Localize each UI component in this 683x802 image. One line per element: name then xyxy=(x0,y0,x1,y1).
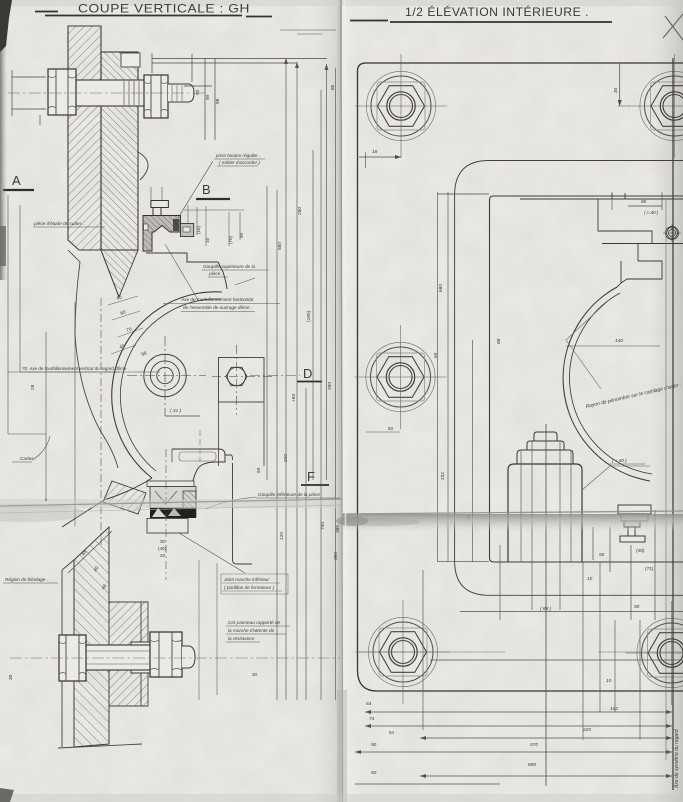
svg-text:30: 30 xyxy=(252,672,258,677)
svg-text:(71): (71) xyxy=(645,566,654,572)
svg-text:18: 18 xyxy=(372,149,378,155)
svg-text:98: 98 xyxy=(239,232,244,238)
svg-text:Axe de symétrie du regard: Axe de symétrie du regard xyxy=(674,729,680,789)
svg-text:232: 232 xyxy=(440,472,446,480)
svg-text:Région de blindage .: Région de blindage . xyxy=(5,577,48,582)
svg-text:la marche d'attente de: la marche d'attente de xyxy=(228,628,275,633)
svg-text:F: F xyxy=(307,469,315,484)
svg-text:( portillon de fermeture ): ( portillon de fermeture ) xyxy=(224,585,274,590)
svg-text:( 88 ): ( 88 ) xyxy=(540,606,552,612)
svg-text:90: 90 xyxy=(195,89,201,95)
svg-text:Joint marche inférieur: Joint marche inférieur xyxy=(223,577,270,582)
svg-text:30: 30 xyxy=(613,87,619,93)
svg-text:85: 85 xyxy=(641,199,647,205)
svg-text:pièce .: pièce . xyxy=(208,271,223,276)
svg-text:Goupille supérieure de la: Goupille supérieure de la xyxy=(203,264,256,269)
svg-text:20: 20 xyxy=(160,553,166,558)
svg-text:70. Axe de tourbillonnement v: 70. Axe de tourbillonnement vertical du … xyxy=(22,366,129,371)
svg-text:30: 30 xyxy=(8,674,14,680)
svg-text:390: 390 xyxy=(333,552,339,560)
svg-text:88: 88 xyxy=(496,338,502,344)
svg-text:30: 30 xyxy=(160,539,166,544)
svg-text:10: 10 xyxy=(606,678,612,684)
svg-text:28: 28 xyxy=(30,384,36,390)
svg-text:90: 90 xyxy=(256,467,262,473)
svg-text:de l'ensemble de ouvrage dôme: de l'ensemble de ouvrage dôme . xyxy=(183,305,252,310)
svg-text:16: 16 xyxy=(205,237,210,243)
svg-text:COUPE VERTICALE : GH: COUPE VERTICALE : GH xyxy=(78,2,250,16)
svg-text:A: A xyxy=(12,173,21,188)
svg-text:220: 220 xyxy=(582,727,591,733)
svg-text:570: 570 xyxy=(530,742,538,748)
svg-text:98: 98 xyxy=(215,98,221,104)
svg-text:1/2 ÉLÉVATION INTÉRIEURE .: 1/2 ÉLÉVATION INTÉRIEURE . xyxy=(405,4,589,19)
svg-text:la résistance .: la résistance . xyxy=(228,636,257,641)
svg-text:120: 120 xyxy=(279,532,285,540)
svg-text:+60: +60 xyxy=(291,394,297,402)
svg-text:385: 385 xyxy=(335,525,341,533)
svg-text:890: 890 xyxy=(528,762,536,768)
svg-text:50: 50 xyxy=(371,770,377,776)
svg-text:Carter .: Carter . xyxy=(20,456,36,461)
svg-text:64: 64 xyxy=(389,730,395,735)
svg-text:55: 55 xyxy=(599,552,605,558)
svg-text:90: 90 xyxy=(205,94,211,100)
svg-text:140: 140 xyxy=(615,338,623,344)
svg-text:B: B xyxy=(202,182,211,197)
svg-text:280: 280 xyxy=(297,207,303,215)
svg-text:D: D xyxy=(303,366,312,381)
svg-text:580: 580 xyxy=(277,242,283,250)
svg-text:50: 50 xyxy=(388,426,394,431)
svg-text:Goupille inférieure de la pièc: Goupille inférieure de la pièce . xyxy=(258,492,323,497)
svg-text:90: 90 xyxy=(634,604,640,610)
svg-text:( 31 ): ( 31 ) xyxy=(170,408,182,414)
svg-text:74: 74 xyxy=(369,716,375,722)
svg-text:( métier d'accorder ): ( métier d'accorder ) xyxy=(219,160,260,165)
svg-text:Axe de tourbillonnement horizo: Axe de tourbillonnement horizontal xyxy=(180,297,254,302)
svg-text:680: 680 xyxy=(438,284,444,292)
svg-text:(30): (30) xyxy=(636,548,645,554)
svg-text:10: 10 xyxy=(587,576,593,582)
svg-text:60: 60 xyxy=(433,352,439,358)
svg-text:290: 290 xyxy=(327,382,333,390)
svg-text:102: 102 xyxy=(610,706,618,712)
svg-text:( + 40 ): ( + 40 ) xyxy=(612,458,627,463)
svg-text:86: 86 xyxy=(330,84,336,90)
svg-text:(40): (40) xyxy=(158,546,167,551)
svg-text:Cet panneau rapporté de: Cet panneau rapporté de xyxy=(228,620,281,625)
svg-text:700: 700 xyxy=(320,522,326,530)
svg-text:(10): (10) xyxy=(196,225,201,234)
svg-text:( r=40 ): ( r=40 ) xyxy=(644,210,659,215)
svg-text:prise bouton régulier ,: prise bouton régulier , xyxy=(215,153,260,158)
svg-text:54: 54 xyxy=(366,701,372,707)
svg-text:pièce d'étude de cutter .: pièce d'étude de cutter . xyxy=(33,221,84,226)
svg-text:(70): (70) xyxy=(228,235,233,244)
svg-text:90: 90 xyxy=(371,742,377,748)
svg-text:(180): (180) xyxy=(306,310,312,322)
svg-text:200: 200 xyxy=(283,454,289,462)
